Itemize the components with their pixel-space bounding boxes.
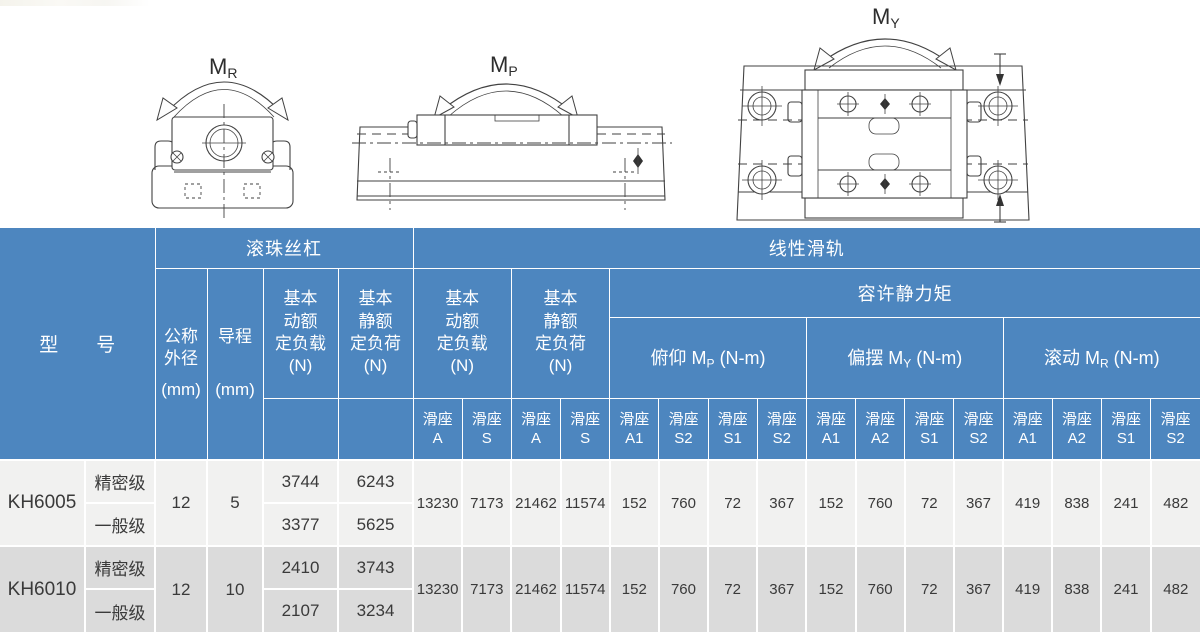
page: MR MP [0, 0, 1200, 637]
header-slider-a2: 滑座A2 [1052, 398, 1101, 460]
data-cell: 152 [610, 460, 659, 546]
model-cell: KH6010 [0, 546, 85, 632]
grade-cell: 精密级 [85, 460, 155, 503]
carriage-side-view-drawing: MP [352, 48, 672, 214]
data-cell: 367 [757, 546, 806, 632]
pitch-moment-diagram: MP [352, 48, 672, 214]
carriage-front-view-drawing: MR [145, 48, 330, 224]
od-cell: 12 [155, 546, 207, 632]
data-cell: 5625 [338, 503, 413, 546]
header-yaw-moment: 偏摆 MY (N-m) [806, 317, 1003, 398]
data-cell: 152 [806, 460, 855, 546]
header-pitch-moment: 俯仰 MP (N-m) [610, 317, 807, 398]
header-slider-a: 滑座A [413, 398, 462, 460]
table-row: KH6010 精密级 12 10 2410 3743 13230 7173 21… [0, 546, 1200, 589]
header-slider-a2: 滑座A2 [856, 398, 905, 460]
header-bs-dynamic-load: 基本 动额 定负载 (N) [263, 268, 338, 398]
data-cell: 21462 [511, 546, 560, 632]
header-slider-s2: 滑座S2 [954, 398, 1003, 460]
data-cell: 482 [1151, 460, 1200, 546]
header-slider-s1: 滑座S1 [905, 398, 954, 460]
grade-cell: 一般级 [85, 589, 155, 632]
header-slider-s: 滑座S [561, 398, 610, 460]
header-slider-s1: 滑座S1 [708, 398, 757, 460]
data-cell: 482 [1151, 546, 1200, 632]
header-lg-dynamic-load: 基本 动额 定负载 (N) [413, 268, 511, 398]
mr-label: MR [209, 54, 237, 81]
header-slider-s: 滑座S [462, 398, 511, 460]
header-empty-bs-stat [338, 398, 413, 460]
header-nominal-od: 公称 外径 (mm) [155, 268, 207, 460]
header-static-moment: 容许静力矩 [610, 268, 1200, 317]
data-cell: 7173 [462, 546, 511, 632]
table-row: KH6005 精密级 12 5 3744 6243 13230 7173 214… [0, 460, 1200, 503]
header-ball-screw: 滚珠丝杠 [155, 228, 413, 268]
data-cell: 2410 [263, 546, 338, 589]
header-slider-a1: 滑座A1 [610, 398, 659, 460]
header-slider-a1: 滑座A1 [806, 398, 855, 460]
lead-cell: 10 [207, 546, 263, 632]
header-model: 型 号 [0, 228, 155, 460]
data-cell: 72 [905, 546, 954, 632]
data-cell: 13230 [413, 460, 462, 546]
data-cell: 152 [610, 546, 659, 632]
data-cell: 11574 [561, 546, 610, 632]
data-cell: 3377 [263, 503, 338, 546]
header-roll-moment: 滚动 MR (N-m) [1003, 317, 1200, 398]
my-label: MY [872, 4, 900, 31]
header-bs-static-load: 基本 静额 定负荷 (N) [338, 268, 413, 398]
data-cell: 21462 [511, 460, 560, 546]
data-cell: 72 [708, 546, 757, 632]
data-cell: 367 [954, 460, 1003, 546]
data-cell: 241 [1101, 546, 1150, 632]
od-cell: 12 [155, 460, 207, 546]
carriage-top-plate [805, 70, 963, 90]
grade-cell: 一般级 [85, 503, 155, 546]
data-cell: 152 [806, 546, 855, 632]
data-cell: 838 [1052, 546, 1101, 632]
scan-artifact [0, 0, 150, 6]
data-cell: 2107 [263, 589, 338, 632]
end-seal [408, 121, 417, 138]
header-slider-s1: 滑座S1 [1101, 398, 1150, 460]
data-cell: 3234 [338, 589, 413, 632]
data-cell: 419 [1003, 460, 1052, 546]
data-cell: 760 [856, 546, 905, 632]
data-cell: 3744 [263, 460, 338, 503]
data-cell: 760 [659, 460, 708, 546]
header-lg-static-load: 基本 静额 定负荷 (N) [511, 268, 609, 398]
grade-cell: 精密级 [85, 546, 155, 589]
data-cell: 838 [1052, 460, 1101, 546]
carriage-block [417, 115, 597, 145]
data-cell: 72 [708, 460, 757, 546]
data-cell: 760 [659, 546, 708, 632]
header-linear-rail: 线性滑轨 [413, 228, 1200, 268]
mp-label: MP [490, 52, 518, 79]
spec-table: 型 号 滚珠丝杠 线性滑轨 公称 外径 (mm) 导程 (mm) 基本 动额 定… [0, 228, 1200, 632]
data-cell: 11574 [561, 460, 610, 546]
header-lead: 导程 (mm) [207, 268, 263, 460]
data-cell: 760 [856, 460, 905, 546]
data-cell: 367 [954, 546, 1003, 632]
data-cell: 367 [757, 460, 806, 546]
header-empty-bs-dyn [263, 398, 338, 460]
lead-cell: 5 [207, 460, 263, 546]
header-slider-a1: 滑座A1 [1003, 398, 1052, 460]
data-cell: 6243 [338, 460, 413, 503]
data-cell: 72 [905, 460, 954, 546]
data-cell: 13230 [413, 546, 462, 632]
data-cell: 241 [1101, 460, 1150, 546]
roll-moment-diagram: MR [145, 48, 330, 224]
header-slider-a: 滑座A [511, 398, 560, 460]
model-cell: KH6005 [0, 460, 85, 546]
moment-arc [822, 39, 948, 62]
header-slider-s2: 滑座S2 [1151, 398, 1200, 460]
header-slider-s2: 滑座S2 [757, 398, 806, 460]
header-slider-s2: 滑座S2 [659, 398, 708, 460]
data-cell: 7173 [462, 460, 511, 546]
carriage-bottom-plate [805, 198, 963, 218]
carriage-top-view-drawing: MY [728, 2, 1048, 226]
clearance-arrows [994, 54, 1006, 222]
data-cell: 3743 [338, 546, 413, 589]
yaw-moment-diagram: MY [728, 2, 1048, 226]
data-cell: 419 [1003, 546, 1052, 632]
